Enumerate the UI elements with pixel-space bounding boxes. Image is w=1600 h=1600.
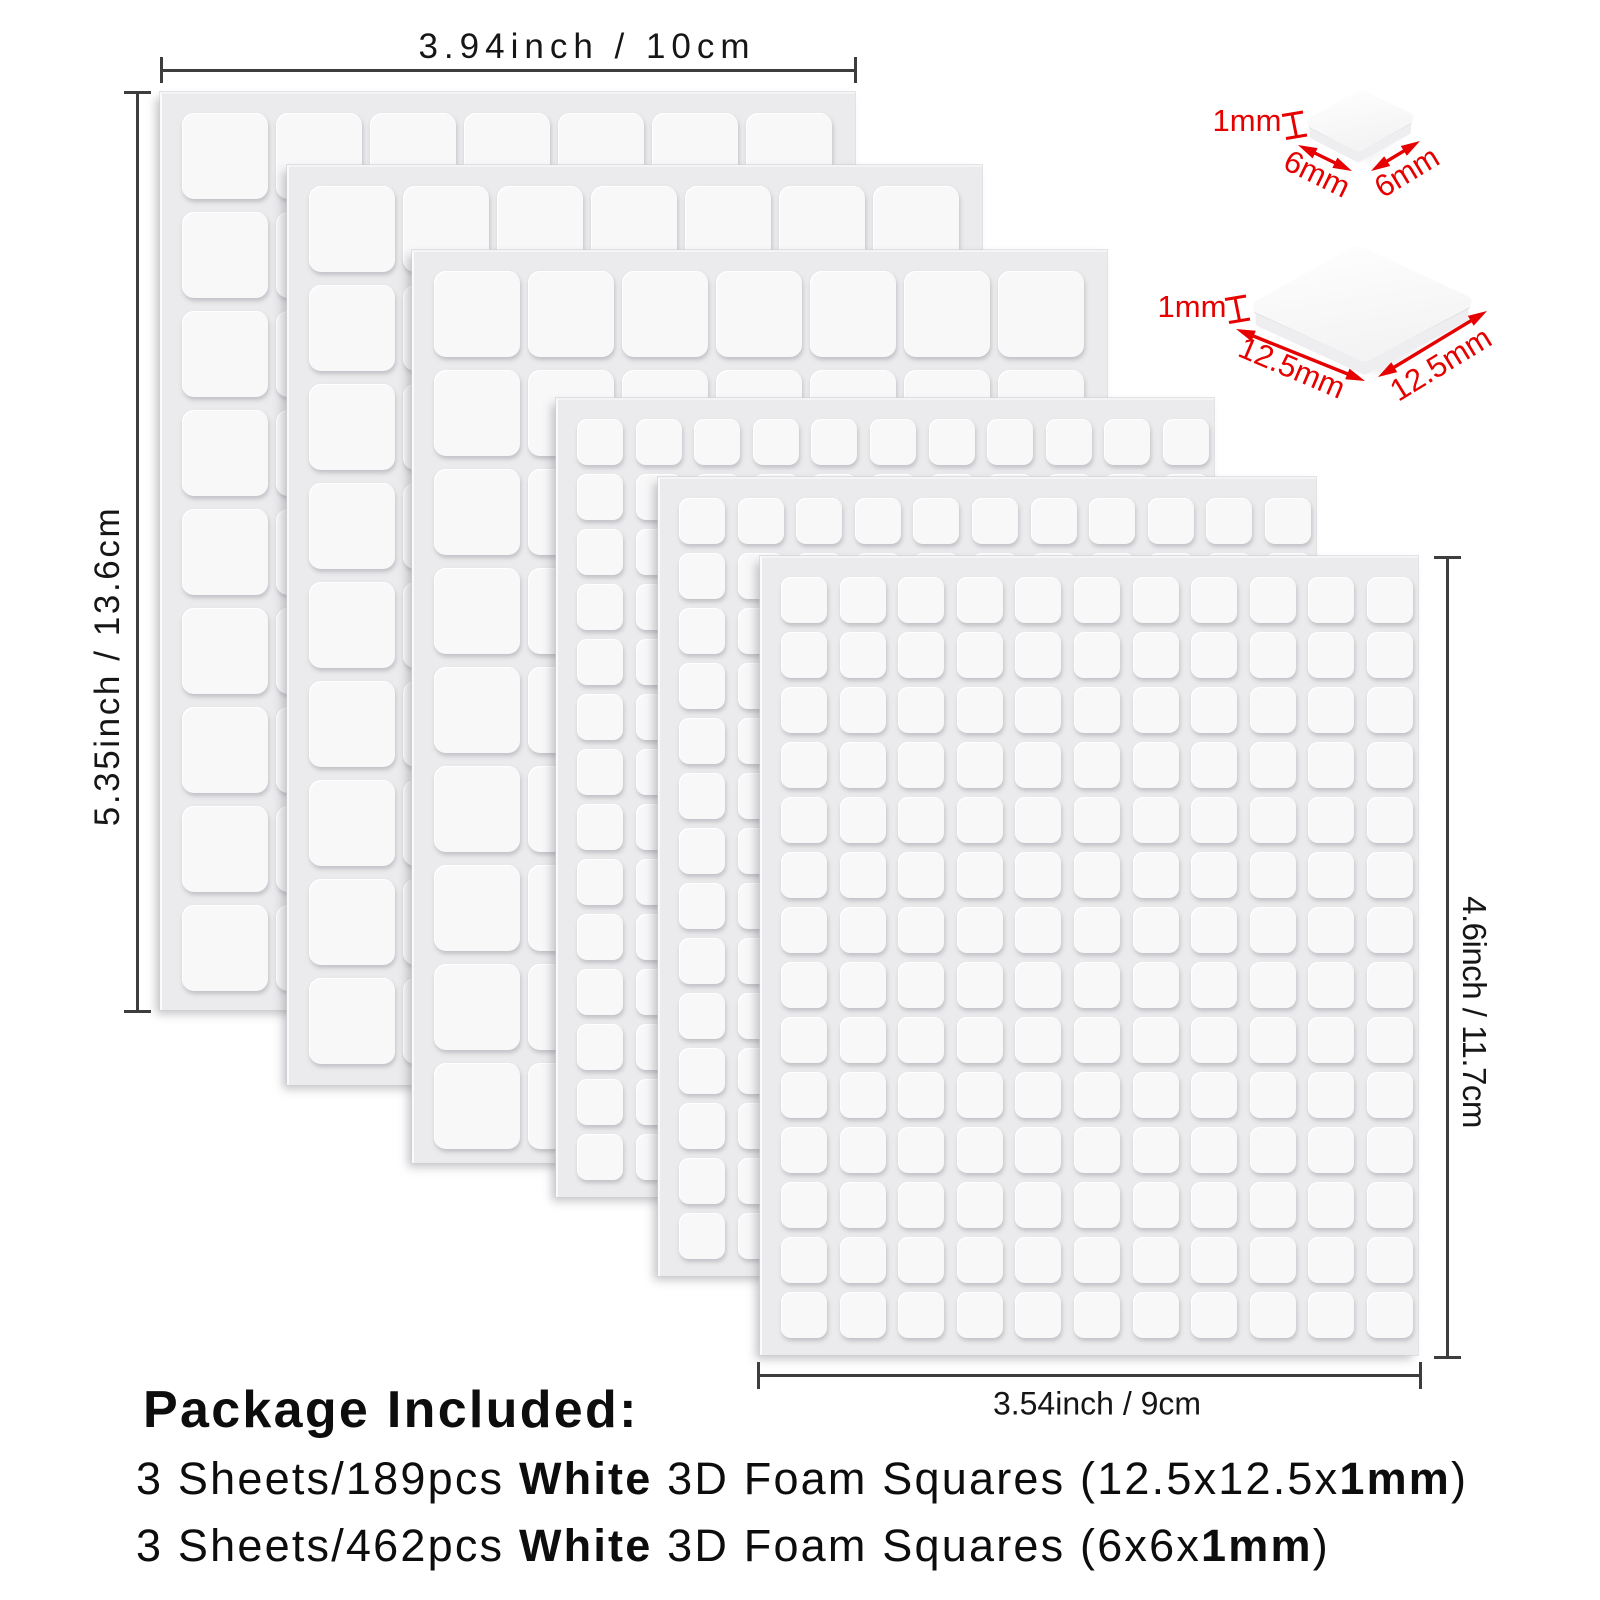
svg-text:1mm: 1mm <box>1158 289 1227 324</box>
svg-text:1mm: 1mm <box>1213 103 1282 138</box>
